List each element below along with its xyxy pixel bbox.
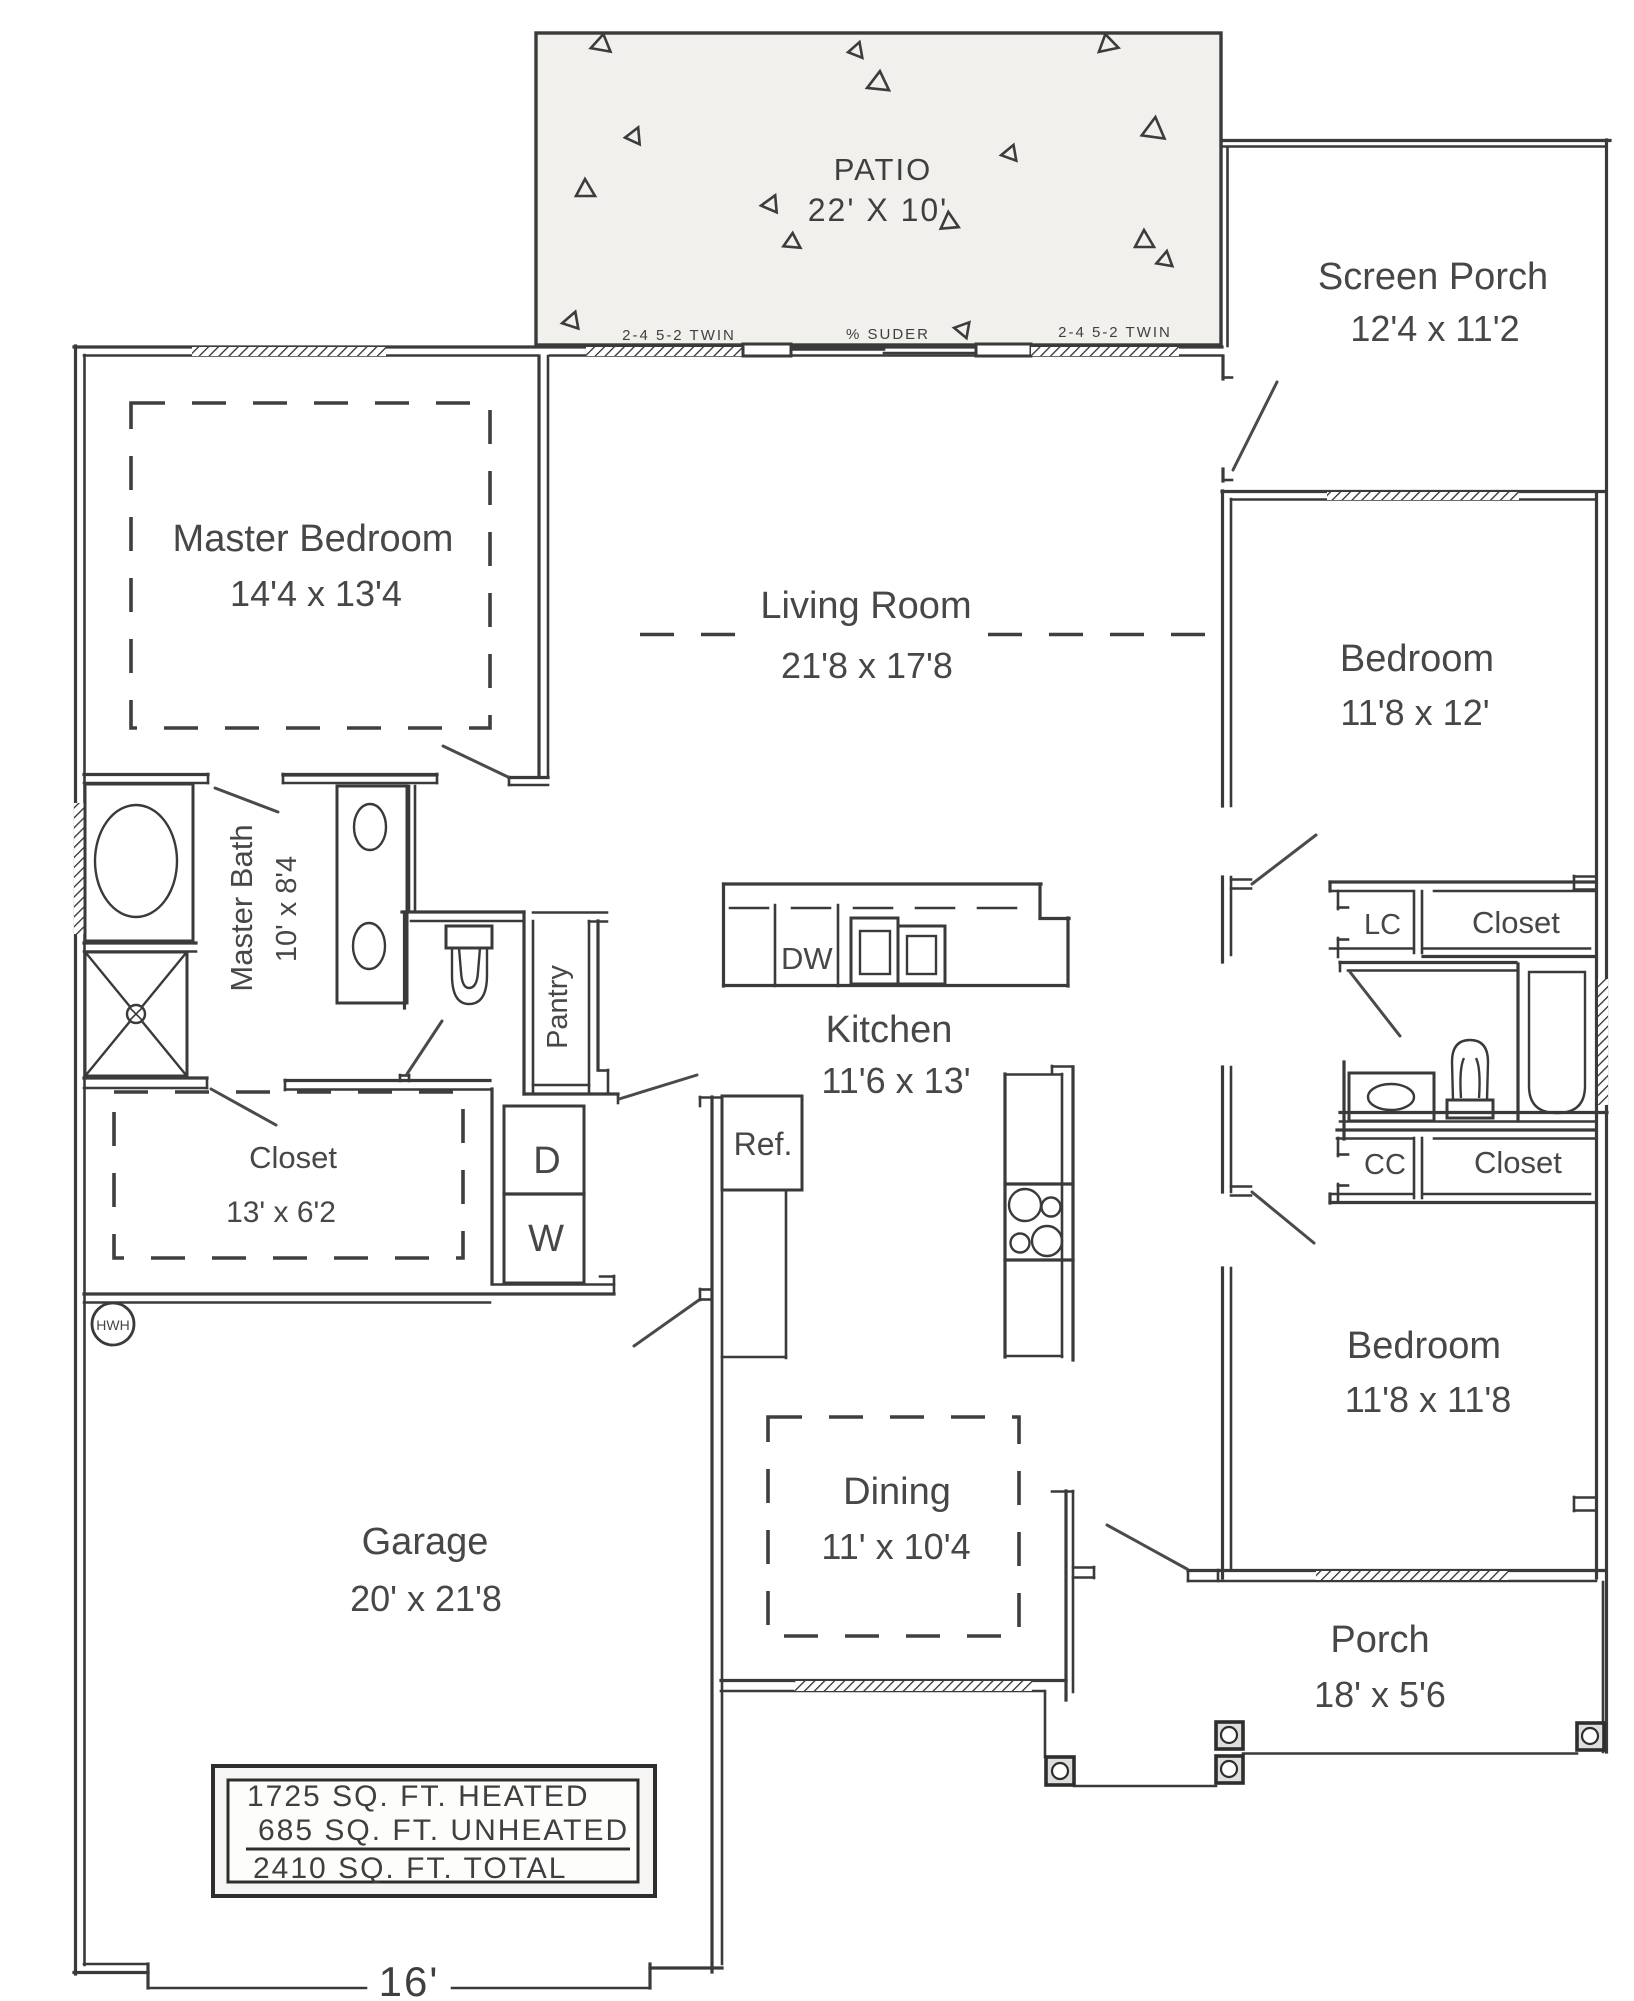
svg-text:Bedroom: Bedroom — [1347, 1325, 1501, 1367]
svg-text:Screen Porch: Screen Porch — [1318, 256, 1548, 298]
svg-text:Ref.: Ref. — [734, 1126, 793, 1162]
svg-text:% SUDER: % SUDER — [846, 326, 930, 343]
svg-text:11' x 10'4: 11' x 10'4 — [821, 1526, 970, 1567]
svg-text:Closet: Closet — [1472, 905, 1560, 940]
svg-text:2410 SQ. FT. TOTAL: 2410 SQ. FT. TOTAL — [253, 1852, 567, 1885]
svg-text:18' x 5'6: 18' x 5'6 — [1314, 1674, 1446, 1715]
svg-text:2-4 5-2 TWIN: 2-4 5-2 TWIN — [1058, 324, 1172, 341]
svg-text:DW: DW — [781, 941, 833, 976]
svg-text:Master Bath: Master Bath — [224, 824, 259, 991]
svg-text:CC: CC — [1364, 1149, 1406, 1181]
svg-text:Bedroom: Bedroom — [1340, 638, 1494, 680]
svg-text:Master Bedroom: Master Bedroom — [173, 518, 454, 560]
svg-text:Kitchen: Kitchen — [826, 1009, 953, 1051]
svg-text:13' x 6'2: 13' x 6'2 — [226, 1196, 336, 1229]
svg-text:16': 16' — [379, 1958, 440, 2001]
svg-text:Pantry: Pantry — [542, 965, 574, 1049]
svg-text:Porch: Porch — [1330, 1619, 1429, 1661]
svg-text:Closet: Closet — [1474, 1145, 1562, 1180]
svg-text:11'8 x 11'8: 11'8 x 11'8 — [1345, 1379, 1512, 1420]
svg-text:PATIO: PATIO — [834, 152, 932, 187]
svg-text:1725 SQ. FT. HEATED: 1725 SQ. FT. HEATED — [247, 1780, 590, 1813]
svg-text:HWH: HWH — [96, 1317, 129, 1333]
svg-text:D: D — [533, 1140, 560, 1182]
svg-text:685 SQ. FT. UNHEATED: 685 SQ. FT. UNHEATED — [258, 1814, 629, 1847]
svg-text:2-4 5-2 TWIN: 2-4 5-2 TWIN — [622, 327, 736, 344]
svg-text:Living Room: Living Room — [760, 585, 971, 627]
svg-text:20' x 21'8: 20' x 21'8 — [350, 1578, 502, 1619]
svg-text:22' X 10': 22' X 10' — [808, 192, 949, 228]
svg-text:10' x 8'4: 10' x 8'4 — [271, 856, 303, 962]
svg-text:Dining: Dining — [843, 1471, 951, 1513]
svg-text:11'6 x 13': 11'6 x 13' — [821, 1060, 970, 1101]
svg-text:11'8 x 12': 11'8 x 12' — [1340, 692, 1489, 733]
svg-text:W: W — [528, 1218, 564, 1260]
svg-text:LC: LC — [1364, 909, 1401, 941]
svg-text:14'4 x 13'4: 14'4 x 13'4 — [230, 573, 402, 614]
svg-text:Garage: Garage — [362, 1521, 489, 1563]
svg-text:12'4 x 11'2: 12'4 x 11'2 — [1350, 308, 1519, 349]
svg-text:Closet: Closet — [249, 1140, 337, 1175]
svg-text:21'8 x 17'8: 21'8 x 17'8 — [781, 645, 953, 686]
